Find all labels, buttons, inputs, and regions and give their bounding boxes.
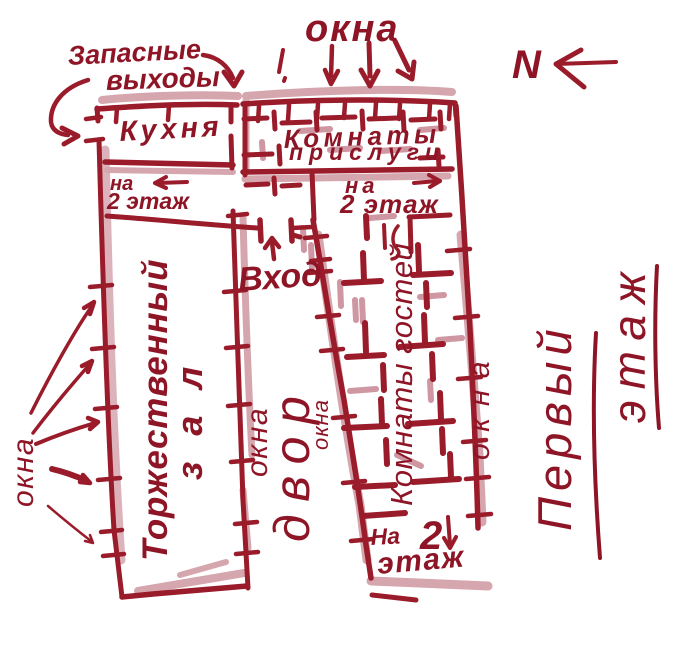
svg-text:окна: окна <box>463 350 496 460</box>
svg-text:этаж: этаж <box>603 261 655 423</box>
svg-text:окна: окна <box>241 407 274 477</box>
svg-text:Вход: Вход <box>237 255 323 299</box>
svg-text:окна: окна <box>7 437 40 507</box>
svg-text:2 этаж: 2 этаж <box>106 188 190 214</box>
svg-text:окна: окна <box>305 8 400 50</box>
svg-text:выходы: выходы <box>105 61 220 96</box>
svg-text:Первый: Первый <box>528 323 581 531</box>
svg-text:N: N <box>512 43 542 87</box>
svg-text:Комнаты гостей: Комнаты гостей <box>384 243 419 506</box>
svg-text:2 этаж: 2 этаж <box>339 189 440 219</box>
svg-text:Кухня: Кухня <box>119 111 224 148</box>
svg-text:окна: окна <box>308 399 333 450</box>
svg-text:зал: зал <box>169 341 210 480</box>
svg-text:прислуги: прислуги <box>289 139 445 165</box>
